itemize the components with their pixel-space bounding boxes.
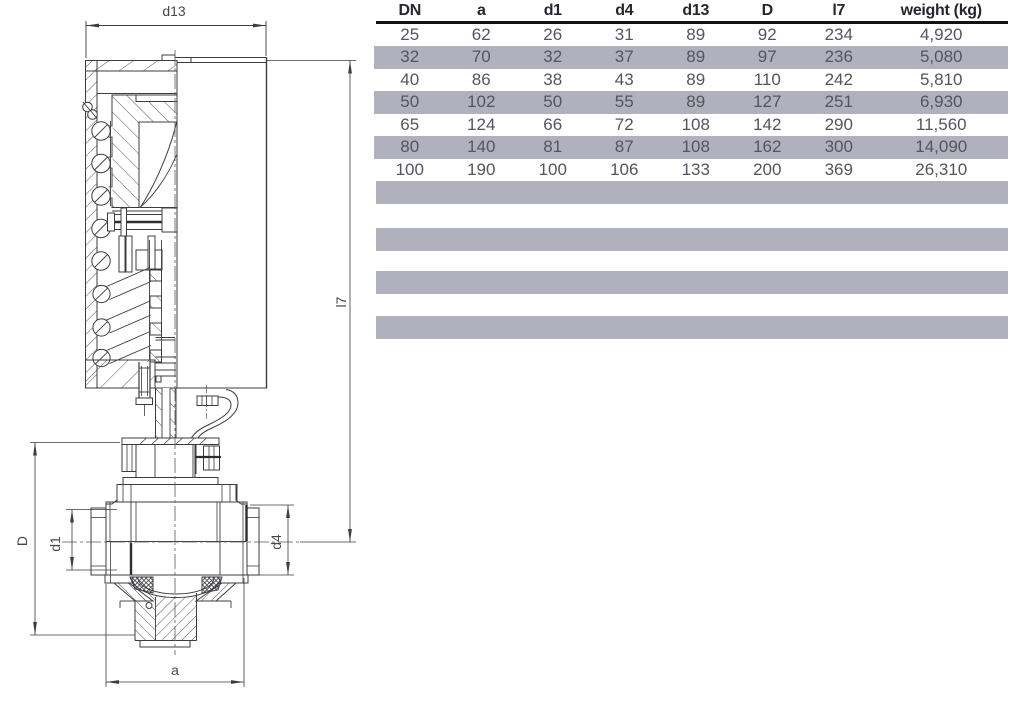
svg-text:d4: d4 — [268, 534, 284, 550]
svg-text:d1: d1 — [47, 536, 63, 552]
svg-text:d13: d13 — [162, 3, 186, 19]
svg-text:a: a — [171, 662, 179, 678]
svg-text:D: D — [14, 536, 30, 546]
svg-text:l7: l7 — [333, 296, 349, 307]
